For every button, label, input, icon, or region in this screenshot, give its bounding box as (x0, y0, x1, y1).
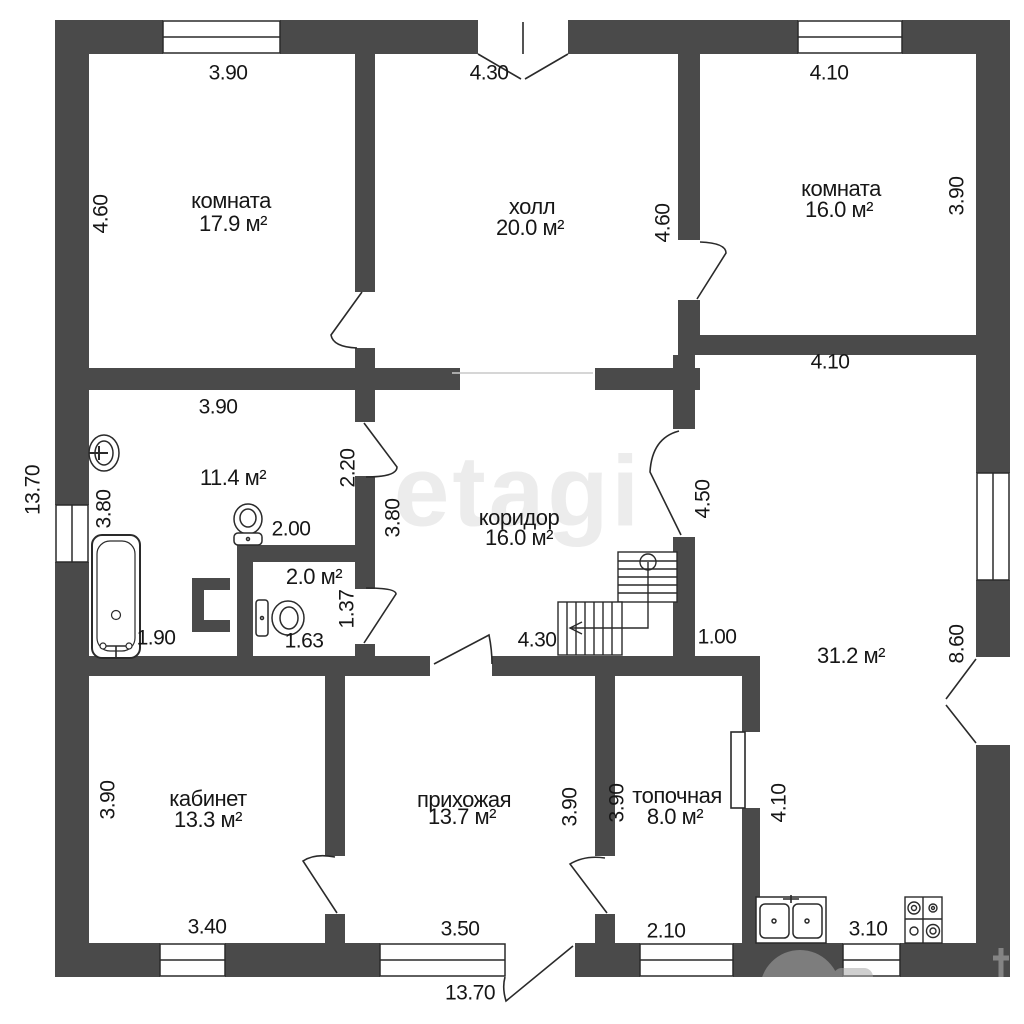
room-area-wc: 2.0 м² (286, 566, 342, 588)
door-bedroom1 (331, 292, 362, 348)
dim-entry-bottom: 3.50 (441, 919, 480, 940)
room-area-hall: 20.0 м² (496, 217, 564, 239)
door-living (650, 431, 681, 535)
dim-entry-right: 3.90 (560, 788, 581, 827)
window-living (977, 473, 1009, 580)
windows (56, 21, 1009, 976)
dim-hall-top: 4.30 (470, 63, 509, 84)
dim-bath-top: 3.90 (199, 397, 238, 418)
dim-living-door: 4.50 (693, 480, 714, 519)
dim-boiler-left: 3.90 (607, 784, 628, 823)
dim-bedroom1-top: 3.90 (209, 63, 248, 84)
dim-wc-height: 1.37 (337, 590, 358, 629)
dim-corridor-left: 3.80 (383, 499, 404, 538)
room-area-bathroom: 11.4 м² (200, 467, 266, 489)
door-bedroom2 (697, 242, 726, 299)
dim-bedroom2-right: 3.90 (947, 177, 968, 216)
dim-office-left: 3.90 (98, 781, 119, 820)
window-bathroom (56, 505, 88, 562)
door-entry-boiler (570, 857, 607, 913)
room-area-bedroom1: 17.9 м² (199, 213, 267, 235)
room-label-bedroom1: комната (191, 190, 271, 212)
dim-corridor-bottom: 4.30 (518, 630, 557, 651)
dim-outer-bottom: 13.70 (445, 983, 495, 1004)
dim-bedroom2-bottom: 4.10 (811, 352, 850, 373)
kitchen-sink (756, 895, 826, 943)
room-area-boiler: 8.0 м² (647, 806, 703, 828)
dim-office-bottom: 3.40 (188, 917, 227, 938)
dim-bath-tub: 1.90 (137, 628, 176, 649)
door-main-entrance (504, 946, 573, 1001)
dim-bath-toilet: 2.00 (272, 519, 311, 540)
stove (905, 897, 942, 943)
dim-living-notch: 1.00 (698, 627, 737, 648)
room-area-corridor: 16.0 м² (485, 527, 553, 549)
toilet-bathroom (234, 504, 262, 545)
window-bedroom2 (798, 21, 902, 53)
room-area-living: 31.2 м² (817, 645, 885, 667)
door-terrace-double (946, 659, 976, 743)
floor-plan: etagi (0, 0, 1024, 1024)
dim-bedroom2-top: 4.10 (810, 63, 849, 84)
door-office (303, 856, 337, 913)
dim-bedroom1-left: 4.60 (91, 195, 112, 234)
door-corridor-entry (434, 635, 492, 664)
bathtub (92, 535, 140, 659)
room-area-bedroom2: 16.0 м² (805, 199, 873, 221)
dim-hall-right: 4.60 (653, 204, 674, 243)
walls (55, 20, 1010, 977)
dim-bath-left: 3.80 (94, 490, 115, 529)
door-boiler-leaf (731, 732, 745, 808)
window-entry (380, 944, 505, 976)
bathroom-sink (89, 435, 119, 471)
door-bathroom (364, 423, 397, 477)
dim-bath-door: 2.20 (338, 449, 359, 488)
room-area-office: 13.3 м² (174, 809, 242, 831)
dim-outer-left: 13.70 (23, 465, 44, 515)
dim-wc-width: 1.63 (285, 631, 324, 652)
window-bedroom1 (163, 21, 280, 53)
duct-inset (204, 590, 230, 620)
stairs (558, 552, 677, 655)
dim-kitchen-bottom: 3.10 (849, 919, 888, 940)
door-wc (364, 588, 396, 643)
dim-living-right: 8.60 (947, 625, 968, 664)
room-area-entry: 13.7 м² (428, 806, 496, 828)
window-office (160, 944, 225, 976)
dim-boiler-right: 4.10 (769, 784, 790, 823)
window-boiler (640, 944, 733, 976)
dim-boiler-bottom: 2.10 (647, 921, 686, 942)
